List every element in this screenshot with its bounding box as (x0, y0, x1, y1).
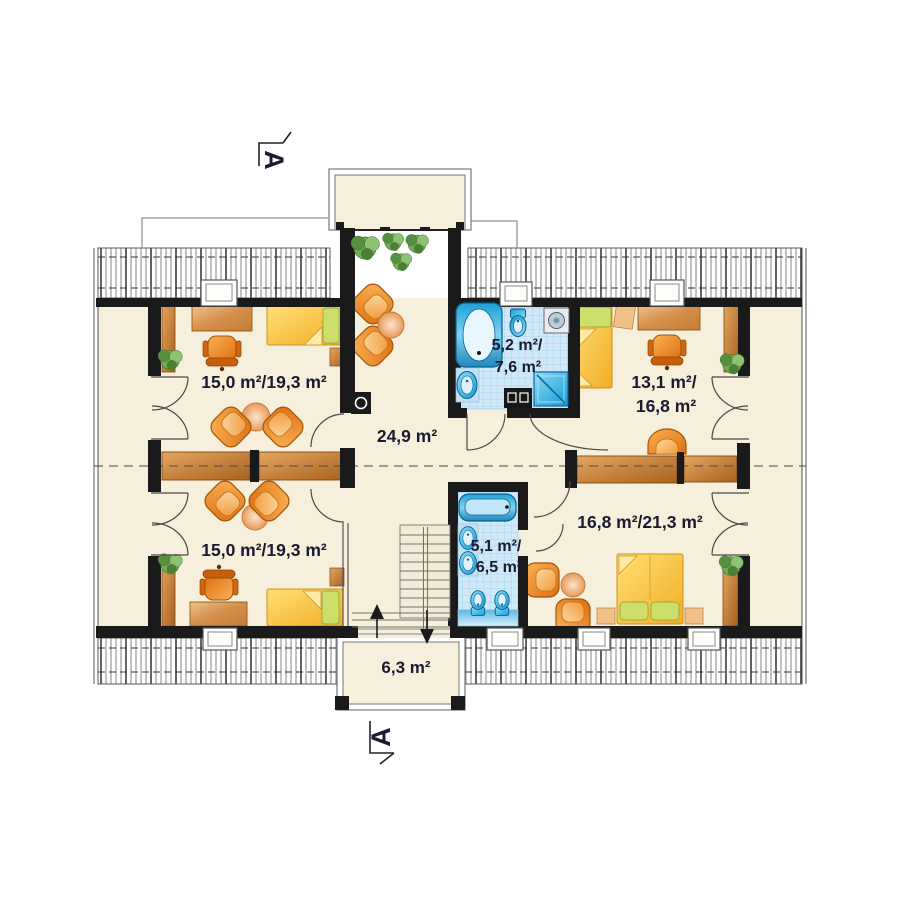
plant (351, 236, 380, 260)
plant (406, 234, 429, 253)
bidet (495, 591, 509, 616)
room-label: 15,0 m²/19,3 m² (201, 372, 327, 392)
room-label: 16,8 m²/21,3 m² (577, 512, 703, 532)
room-label: 16,8 m² (636, 396, 696, 416)
side-table (561, 573, 585, 597)
room-label: 6,3 m² (381, 658, 430, 677)
sink (457, 372, 477, 399)
room-label: 6,5 m² (476, 559, 522, 576)
roof-window (487, 628, 523, 650)
bed (267, 306, 341, 345)
section-letter: A (259, 150, 289, 170)
roof-window (650, 280, 684, 306)
toilet (471, 591, 485, 616)
section-letter: A (366, 727, 396, 747)
cabinet (504, 388, 532, 408)
plant (383, 233, 404, 251)
bed (267, 589, 343, 626)
roof-window (201, 280, 237, 306)
section-marker-bottom: A (366, 721, 396, 764)
room-label: 7,6 m² (495, 359, 541, 376)
desk (190, 602, 247, 626)
room-label: 5,2 m²/ (492, 337, 543, 354)
roof-window (203, 628, 237, 650)
roof-window (688, 628, 720, 650)
shelf (613, 304, 635, 329)
side-table (378, 312, 404, 338)
room-label: 24,9 m² (377, 426, 437, 446)
nightstand (597, 608, 615, 624)
plant (391, 253, 412, 271)
floor-plan: 15,0 m²/19,3 m² 24,9 m² 5,2 m²/ 7,6 m² 1… (0, 0, 900, 900)
desk (192, 306, 252, 331)
section-marker-top: A (259, 132, 291, 170)
nightstand (685, 608, 703, 624)
washing-machine (544, 308, 569, 333)
roof-window (578, 628, 610, 650)
double-bed (617, 554, 683, 624)
room-label: 13,1 m²/ (631, 372, 696, 392)
nightstand (330, 568, 344, 586)
desk (638, 305, 700, 330)
flue (351, 392, 371, 414)
room-label: 5,1 m²/ (471, 538, 522, 555)
office-chair (648, 335, 686, 370)
balcony-top (329, 169, 471, 231)
office-chair (203, 336, 241, 371)
bathtub (456, 303, 502, 367)
room-label: 15,0 m²/19,3 m² (201, 540, 327, 560)
shower (534, 372, 568, 406)
armchair (525, 563, 559, 597)
toilet (510, 309, 526, 337)
office-chair (200, 565, 238, 600)
roof-window (500, 282, 532, 306)
floor-plan-drawing: 15,0 m²/19,3 m² 24,9 m² 5,2 m²/ 7,6 m² 1… (0, 0, 900, 900)
bathtub (459, 494, 516, 521)
